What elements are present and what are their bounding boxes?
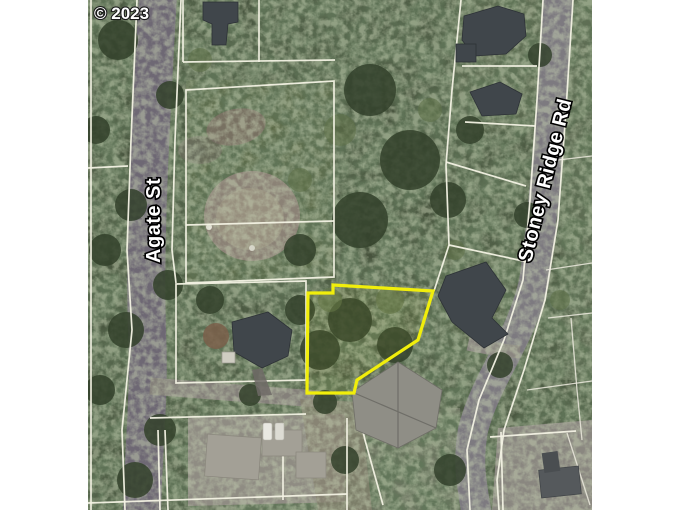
copyright-watermark: © 2023 [94, 4, 149, 23]
car [263, 423, 272, 440]
shed-mid-left [222, 352, 235, 363]
car [275, 423, 284, 440]
house-bottom-left-1 [205, 434, 262, 480]
aerial-photo: Agate St Stoney Ridge Rd © 2023 [0, 0, 680, 510]
aerial-map: Agate St Stoney Ridge Rd © 2023 [0, 0, 680, 510]
garage-topright [456, 44, 476, 62]
photo-area: Agate St Stoney Ridge Rd © 2023 [0, 0, 592, 510]
street-label-agate: Agate St [143, 178, 165, 263]
red-tree [203, 323, 229, 349]
car-bottom-right [542, 451, 561, 473]
house-bottom-left-3 [296, 452, 326, 478]
